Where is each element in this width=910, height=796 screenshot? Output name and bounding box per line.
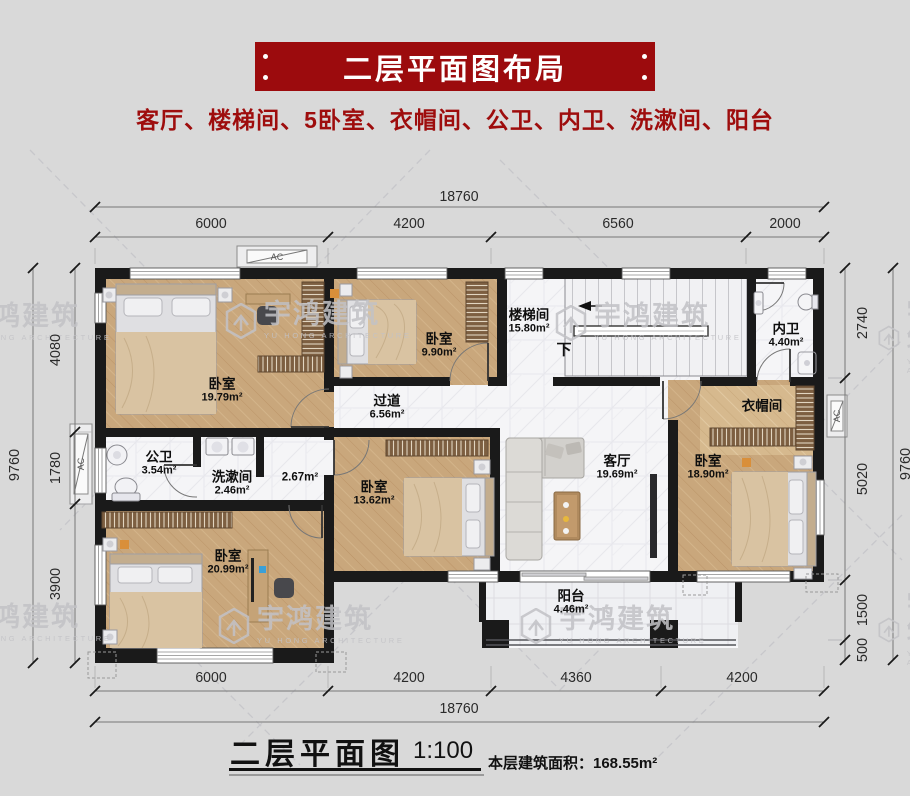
floor-plan-page: 二层平面图布局 客厅、楼梯间、5卧室、衣帽间、公卫、内卫、洗漱间、阳台 宇鸿建筑… xyxy=(0,0,910,796)
dim-right-seg-3: 1500 xyxy=(855,594,871,626)
dim-right-seg-1: 2740 xyxy=(855,307,871,339)
dim-right-seg-2: 5020 xyxy=(855,463,871,495)
dim-right-seg-4: 500 xyxy=(855,638,871,662)
room-label-bedroom-top-mid: 卧室 9.90m² xyxy=(422,331,457,358)
room-label-cloakroom: 衣帽间 xyxy=(742,398,783,413)
floor-area-note: 本层建筑面积：168.55m² xyxy=(488,752,657,773)
ac-unit-label: AC xyxy=(832,410,842,423)
dim-left-seg-1: 4080 xyxy=(48,334,64,366)
banner-dot xyxy=(263,54,268,59)
room-label-hallway: 过道 6.56m² xyxy=(370,393,405,420)
room-label-bath-public: 公卫 3.54m² xyxy=(142,449,177,476)
room-label-washroom: 洗漱间 2.46m² xyxy=(212,469,253,496)
dim-top-seg-3: 6560 xyxy=(602,216,633,232)
bed-bottom-left xyxy=(103,538,202,648)
title-underline-thin xyxy=(229,774,484,776)
dim-bottom-total: 18760 xyxy=(439,701,478,717)
dim-top-seg-2: 4200 xyxy=(393,216,424,232)
room-label-bedroom-right: 卧室 18.90m² xyxy=(688,453,729,480)
dim-bottom-seg-2: 4200 xyxy=(393,670,424,686)
room-label-living-room: 客厅 19.69m² xyxy=(597,453,638,480)
room-label-bedroom-mid: 卧室 13.62m² xyxy=(354,479,395,506)
banner-dot xyxy=(263,75,268,80)
dim-bottom-seg-4: 4200 xyxy=(726,670,757,686)
drawing-title: 二层平面图 xyxy=(230,729,405,773)
title-underline xyxy=(229,768,481,771)
dim-bottom-seg-3: 4360 xyxy=(560,670,591,686)
coffee-table xyxy=(554,492,580,540)
ac-unit-label: AC xyxy=(76,458,86,471)
room-label-stairwell: 楼梯间 15.80m² xyxy=(509,307,550,334)
banner-dot xyxy=(642,75,647,80)
title-banner: 二层平面图布局 xyxy=(255,42,655,91)
page-title: 二层平面图布局 xyxy=(343,46,567,88)
room-label-bedroom-top-left: 卧室 19.79m² xyxy=(202,376,243,403)
room-label-bedroom-bottom-left: 卧室 20.99m² xyxy=(208,548,249,575)
banner-dot xyxy=(642,54,647,59)
bed-right xyxy=(732,456,816,579)
dim-left-seg-2: 1780 xyxy=(48,452,64,484)
dim-left-total: 9760 xyxy=(7,449,23,481)
tv-unit xyxy=(650,474,657,558)
dim-left-seg-3: 3900 xyxy=(48,568,64,600)
dim-bottom-seg-1: 6000 xyxy=(195,670,226,686)
stair-down-label: 下 xyxy=(556,339,571,360)
dim-right-total: 9760 xyxy=(898,448,910,480)
room-list-subtitle: 客厅、楼梯间、5卧室、衣帽间、公卫、内卫、洗漱间、阳台 xyxy=(0,101,910,135)
dim-top-seg-4: 2000 xyxy=(769,216,800,232)
room-label-corridor: 2.67m² xyxy=(282,472,318,485)
drawing-scale: 1:100 xyxy=(413,737,473,765)
dim-top-total: 18760 xyxy=(439,189,478,205)
room-label-balcony: 阳台 4.46m² xyxy=(554,588,589,615)
ac-unit-label: AC xyxy=(271,252,284,262)
dim-top-seg-1: 6000 xyxy=(195,216,226,232)
room-label-bath-private: 内卫 4.40m² xyxy=(769,321,804,348)
